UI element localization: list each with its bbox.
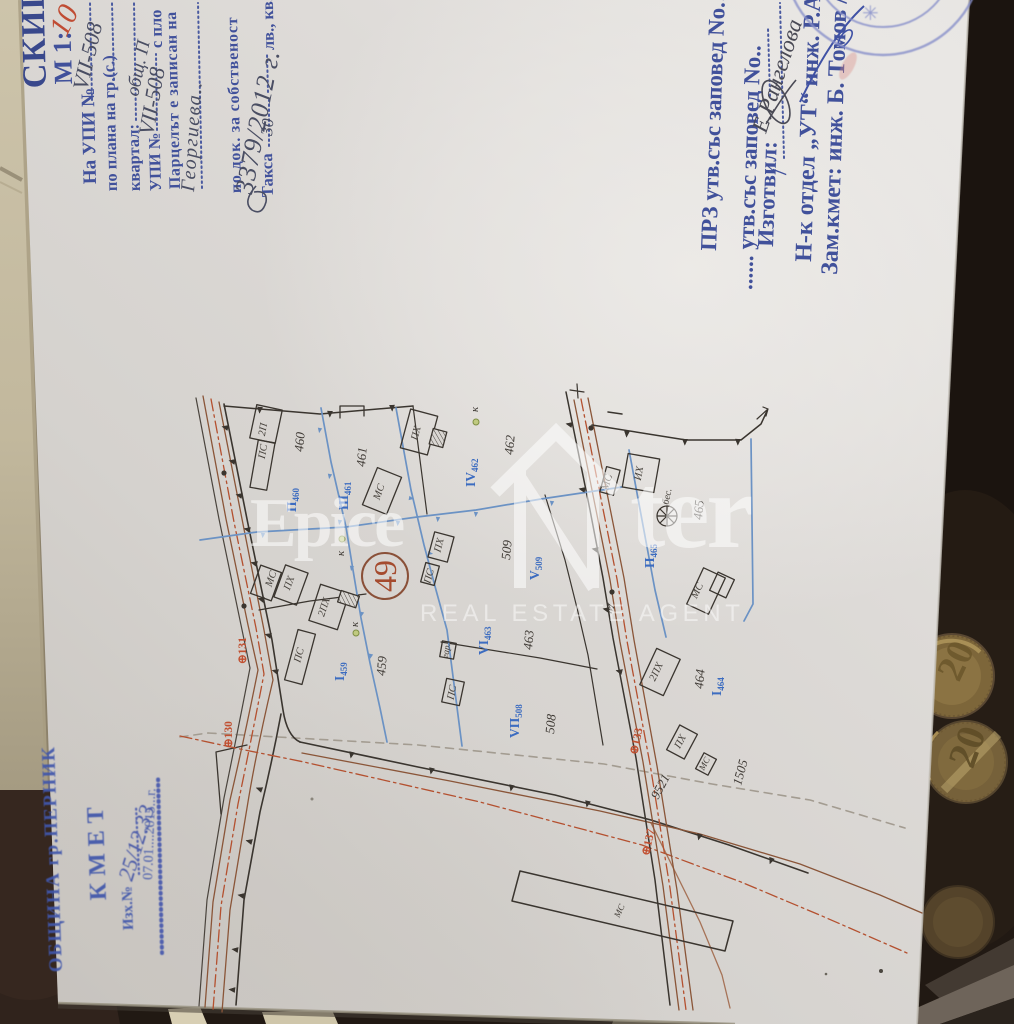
svg-text:30: 30 — [257, 117, 278, 137]
svg-text:Epice: Epice — [250, 485, 404, 562]
svg-text:464: 464 — [691, 668, 708, 689]
svg-text:✳: ✳ — [862, 3, 879, 25]
svg-text:по плана на гр.(с.): по плана на гр.(с.) — [99, 55, 121, 191]
svg-text:REAL ESTATE AGENT: REAL ESTATE AGENT — [420, 600, 744, 627]
svg-text:⊕131: ⊕131 — [237, 637, 249, 664]
svg-text:463: 463 — [520, 629, 537, 650]
svg-text:Изх.№: Изх.№ — [119, 886, 137, 931]
svg-text:460: 460 — [291, 431, 308, 452]
svg-text:508: 508 — [542, 713, 559, 734]
svg-text:На УПИ №: На УПИ № — [78, 88, 101, 185]
svg-text:к: к — [469, 406, 481, 412]
svg-text:509: 509 — [498, 539, 515, 560]
svg-text:лв., кв.: лв., кв. — [258, 0, 278, 50]
svg-text:49: 49 — [367, 560, 403, 592]
svg-text:459: 459 — [373, 655, 390, 676]
svg-text:07.01....2015...г.: 07.01....2015...г. — [141, 788, 159, 880]
svg-text:УПИ №: УПИ № — [145, 132, 165, 191]
svg-text:ter: ter — [630, 453, 751, 570]
svg-text:/: / — [769, 168, 791, 176]
svg-text:462: 462 — [501, 434, 518, 455]
svg-text:Изготвил:: Изготвил: — [753, 141, 782, 248]
svg-text:461: 461 — [353, 447, 370, 468]
svg-text:к: к — [349, 621, 361, 627]
svg-text:КМЕТ: КМЕТ — [83, 800, 112, 901]
svg-text:⊕130: ⊕130 — [223, 721, 235, 748]
